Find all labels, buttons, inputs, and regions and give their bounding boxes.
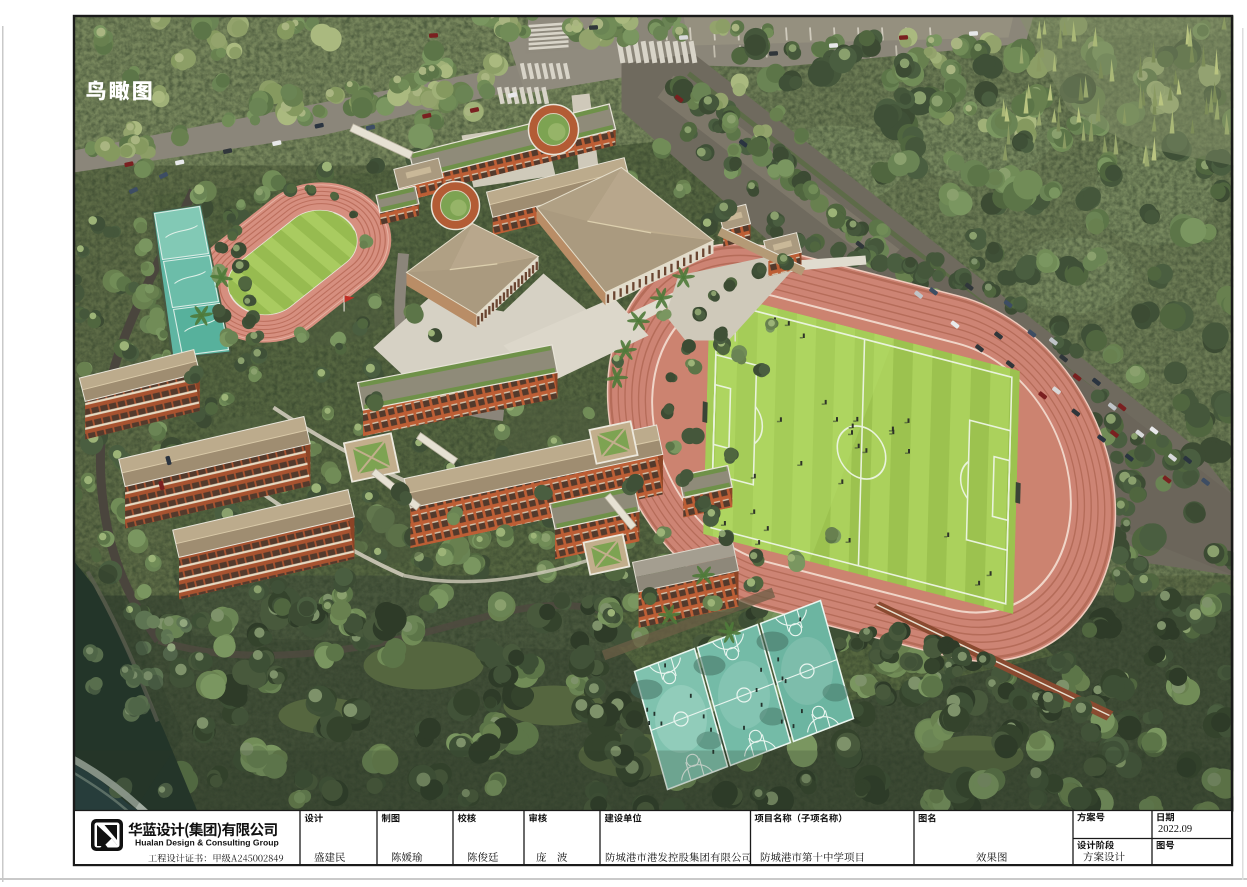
svg-text:Hualan Design & Consulting Gro: Hualan Design & Consulting Group xyxy=(135,838,279,848)
svg-text:2022.09: 2022.09 xyxy=(1158,824,1192,835)
